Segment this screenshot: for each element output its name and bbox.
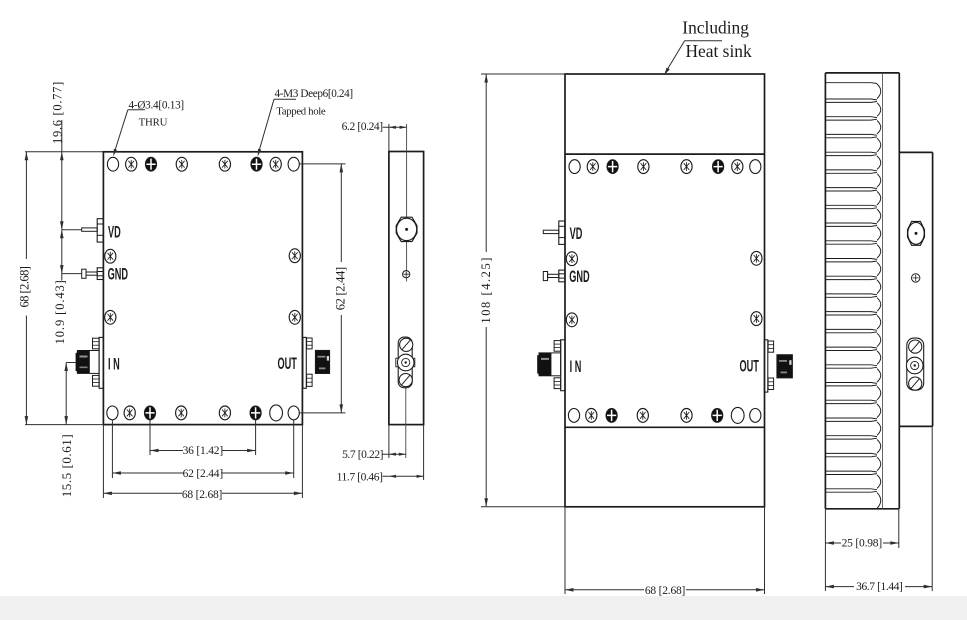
svg-text:62 [2.44]: 62 [2.44] — [183, 468, 223, 480]
svg-text:I N: I N — [108, 355, 120, 374]
svg-text:5.7 [0.22]: 5.7 [0.22] — [342, 449, 383, 461]
svg-text:4-M3 Deep6[0.24]: 4-M3 Deep6[0.24] — [275, 88, 353, 100]
svg-text:I N: I N — [570, 357, 582, 376]
svg-text:GND: GND — [108, 265, 128, 284]
svg-text:VD: VD — [108, 223, 121, 242]
svg-text:62 [2.44]: 62 [2.44] — [334, 267, 348, 310]
svg-text:10.9 [0.43]: 10.9 [0.43] — [53, 279, 67, 344]
svg-text:11.7 [0.46]: 11.7 [0.46] — [337, 472, 383, 484]
svg-text:6.2 [0.24]: 6.2 [0.24] — [342, 121, 383, 133]
svg-text:OUT: OUT — [278, 354, 298, 373]
svg-text:15.5 [0.61]: 15.5 [0.61] — [59, 434, 74, 497]
svg-text:Tapped hole: Tapped hole — [276, 106, 326, 118]
svg-text:Heat sink: Heat sink — [686, 41, 752, 61]
svg-text:68 [2.68]: 68 [2.68] — [645, 585, 685, 597]
svg-text:68 [2.68]: 68 [2.68] — [182, 489, 222, 501]
svg-text:VD: VD — [570, 224, 583, 243]
svg-text:THRU: THRU — [139, 116, 168, 128]
svg-text:108 [4.25]: 108 [4.25] — [479, 256, 493, 324]
svg-text:Including: Including — [682, 17, 749, 37]
svg-text:25 [0.98]: 25 [0.98] — [842, 538, 882, 550]
svg-text:68 [2.68]: 68 [2.68] — [17, 266, 31, 307]
svg-text:36.7 [1.44]: 36.7 [1.44] — [856, 581, 902, 593]
svg-text:GND: GND — [569, 267, 589, 286]
svg-text:36 [1.42]: 36 [1.42] — [183, 445, 223, 457]
svg-text:OUT: OUT — [740, 357, 760, 376]
